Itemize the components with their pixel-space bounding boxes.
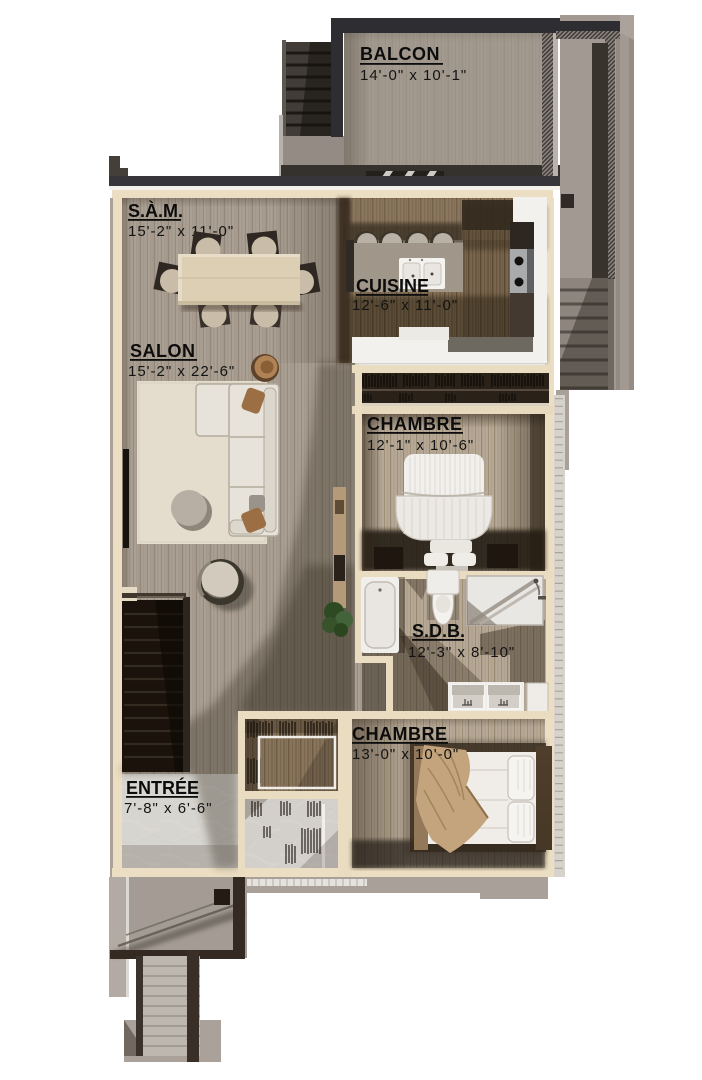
svg-text:12'-1" x 10'-6": 12'-1" x 10'-6" bbox=[367, 437, 474, 454]
svg-text:CHAMBRE: CHAMBRE bbox=[367, 414, 463, 434]
svg-text:12'-6" x 11'-0": 12'-6" x 11'-0" bbox=[352, 297, 458, 314]
svg-text:BALCON: BALCON bbox=[360, 44, 440, 64]
svg-text:12'-3" x 8'-10": 12'-3" x 8'-10" bbox=[408, 644, 515, 661]
svg-text:14'-0" x 10'-1": 14'-0" x 10'-1" bbox=[360, 67, 467, 84]
svg-text:7'-8" x 6'-6": 7'-8" x 6'-6" bbox=[124, 800, 213, 817]
svg-text:ENTRÉE: ENTRÉE bbox=[126, 777, 199, 798]
svg-text:S.À.M.: S.À.M. bbox=[128, 200, 183, 221]
svg-text:13'-0" x 10'-0": 13'-0" x 10'-0" bbox=[352, 746, 459, 763]
svg-text:CUISINE: CUISINE bbox=[356, 276, 429, 296]
svg-text:S.D.B.: S.D.B. bbox=[412, 621, 465, 641]
svg-text:15'-2" x 22'-6": 15'-2" x 22'-6" bbox=[128, 363, 235, 380]
svg-text:CHAMBRE: CHAMBRE bbox=[352, 724, 448, 744]
svg-text:SALON: SALON bbox=[130, 341, 196, 361]
